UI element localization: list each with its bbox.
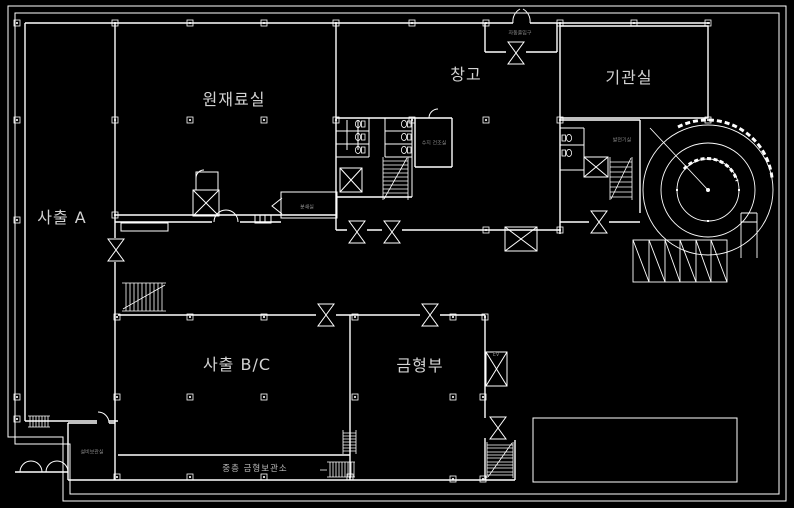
- annotation-vestibule: 자동출입구: [508, 30, 531, 37]
- elevator-symbols: [340, 157, 608, 386]
- room-label-sachul-a: 사출 A: [37, 204, 86, 228]
- stair-symbols: [28, 157, 632, 478]
- room-label-gigwansil: 기관실: [605, 64, 652, 88]
- room-label-wonjaeryosil: 원재료실: [203, 86, 266, 110]
- column-markers: [14, 20, 711, 482]
- annotation-equipment-store: 설비보관실: [80, 449, 103, 456]
- dock-stalls: [633, 240, 727, 282]
- annotation-elevator: EV: [493, 352, 500, 358]
- annotation-resin-room: 수지 건조실: [422, 140, 447, 147]
- room-label-changgo: 창고: [450, 61, 481, 85]
- interior-partitions: [121, 118, 737, 482]
- floorplan-drawing: [0, 0, 794, 508]
- spiral-ramp: [643, 120, 773, 258]
- toilet-symbols: [355, 120, 571, 156]
- annotation-mezzanine-store: 중층 금형보관소: [222, 462, 287, 474]
- room-label-sachul-bc: 사출 B/C: [203, 351, 271, 375]
- room-label-geumhyeongbu: 금형부: [396, 352, 443, 376]
- cad-viewport[interactable]: 사출 A 원재료실 창고 기관실 사출 B/C 금형부 자동출입구 수지 건조실…: [0, 0, 794, 508]
- building-walls: [15, 23, 710, 480]
- annotation-generator-room: 발전기실: [613, 137, 631, 144]
- drawing-frame: [8, 6, 786, 501]
- double-door-symbols: [108, 42, 607, 439]
- annotation-grinding-room: 분쇄실: [300, 204, 314, 211]
- yard-structure: [533, 418, 737, 482]
- machine-symbols: [193, 172, 537, 251]
